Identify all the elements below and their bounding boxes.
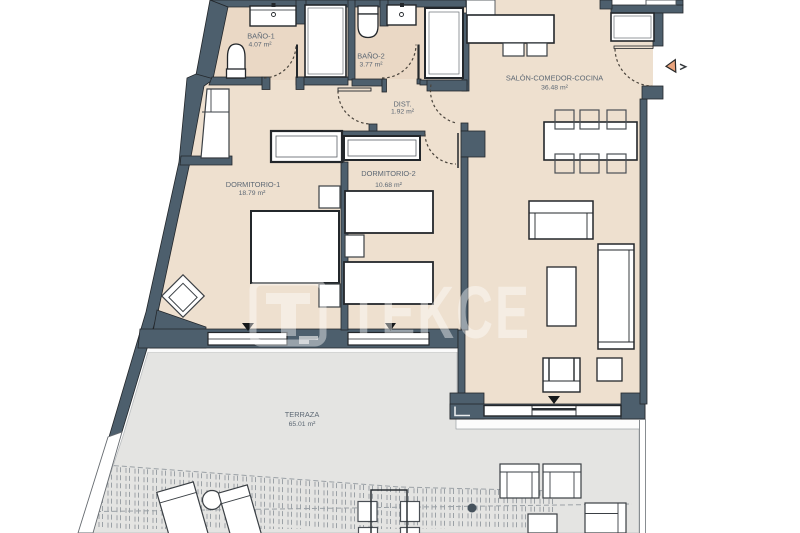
svg-text:3.77 m²: 3.77 m² (359, 62, 383, 69)
svg-text:DIST.: DIST. (393, 100, 411, 109)
svg-text:TEKCE: TEKCE (348, 272, 531, 355)
svg-text:1.92 m²: 1.92 m² (391, 109, 415, 116)
svg-text:10.68 m²: 10.68 m² (375, 182, 403, 189)
svg-text:TERRAZA: TERRAZA (285, 410, 320, 419)
svg-text:36.48 m²: 36.48 m² (541, 85, 569, 92)
svg-text:SALÓN-COMEDOR-COCINA: SALÓN-COMEDOR-COCINA (506, 74, 603, 83)
svg-text:BAÑO-2: BAÑO-2 (357, 52, 385, 61)
svg-text:DORMITORIO-2: DORMITORIO-2 (361, 169, 415, 178)
svg-text:18.79 m²: 18.79 m² (239, 190, 267, 197)
svg-text:BAÑO-1: BAÑO-1 (247, 32, 275, 41)
svg-text:4.07 m²: 4.07 m² (248, 42, 272, 49)
svg-text:65.01 m²: 65.01 m² (289, 421, 317, 428)
svg-text:DORMITORIO-1: DORMITORIO-1 (226, 180, 280, 189)
